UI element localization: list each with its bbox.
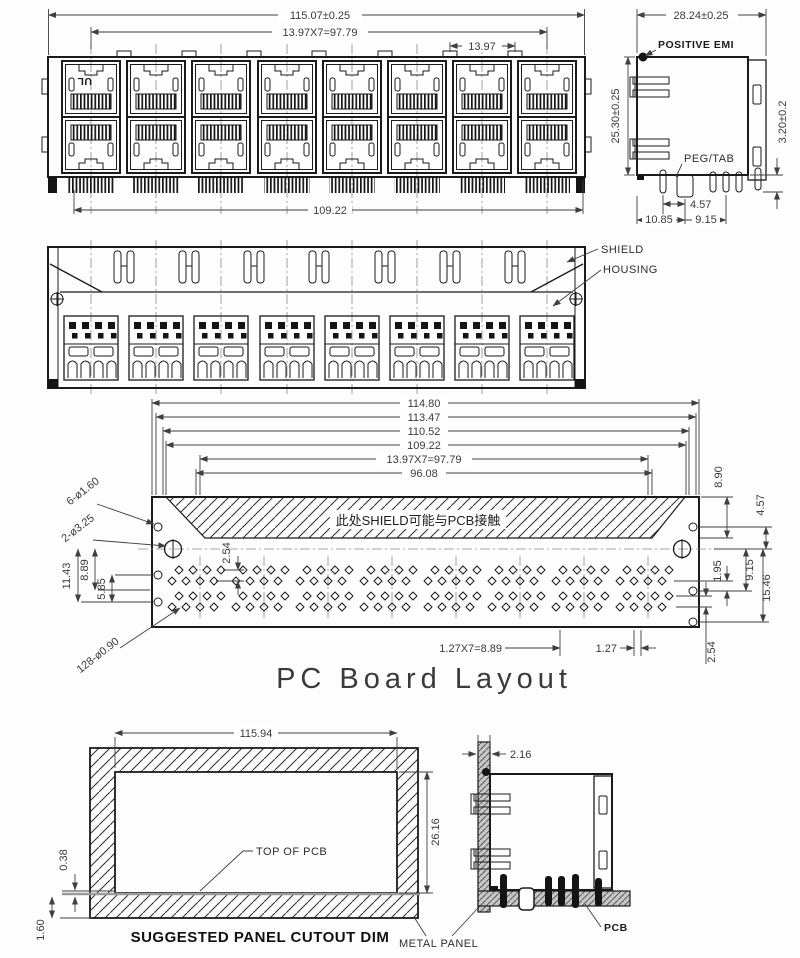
metal-panel-label: METAL PANEL: [399, 938, 478, 950]
dim-row-gap: 1.95: [712, 560, 724, 581]
rj45-ports-lower-row: [62, 117, 576, 173]
cutout-opening: [115, 772, 397, 893]
pcb-top-dimensions: 114.80 113.47 110.52 109.22 13.97X7=97.7…: [152, 397, 699, 495]
rear-view: SHIELD HOUSING: [48, 240, 658, 396]
pcb-right-dimensions: 8.90 4.57 1.95 9.15 15.46 2.54: [674, 466, 773, 664]
dim-cutout-height: 26.16: [430, 818, 442, 846]
side-pins: [637, 168, 761, 197]
big-hole-label: 2-ø3.25: [60, 512, 97, 545]
dim-hole-gap: 4.57: [755, 494, 767, 515]
rear-contact-modules: [64, 316, 574, 380]
dim-shield-width: 109.22: [313, 205, 347, 217]
metal-panel-edge: [478, 742, 490, 912]
dim-left-3: 5.85: [96, 578, 108, 599]
dim-pcb-2: 113.47: [408, 412, 441, 424]
dim-peg-offset: 4.57: [690, 199, 711, 211]
small-hole-label: 6-ø1.60: [65, 475, 102, 508]
dim-pcb-1: 114.80: [408, 398, 441, 410]
pcb-layout: 此处SHIELD可能与PCB接触 114.80 113.47 110.52 10…: [60, 397, 773, 695]
dim-cutout-width: 115.94: [240, 728, 273, 740]
dim-pcb-gap: 0.38: [58, 849, 70, 870]
pcb-label: PCB: [604, 922, 628, 934]
dim-panel-thk-side: 2.16: [510, 749, 531, 761]
dim-panel-thickness: 1.60: [35, 919, 47, 940]
positive-emi-label: POSITIVE EMI: [658, 39, 734, 51]
top-of-pcb-label: TOP OF PCB: [256, 846, 327, 858]
dim-pitch-total: 13.97X7=97.79: [283, 27, 358, 39]
dim-pin-pitch: 1.27: [596, 643, 617, 655]
dim-pin-row-pitch: 2.54: [221, 542, 233, 563]
rj45-ports-upper-row: [62, 61, 576, 117]
pin-hole-label: 128-ø0.90: [75, 635, 122, 675]
dim-left-2: 8.89: [79, 559, 91, 580]
engineering-drawing-page: UL 115.07±0.25 13.97X7=97.79 13.97 109.2…: [0, 0, 800, 953]
shield-label: SHIELD: [601, 244, 644, 256]
dim-port-pitch: 13.97: [468, 41, 496, 53]
dim-left-1: 11.43: [61, 563, 73, 590]
dim-height: 25.30±0.25: [610, 89, 622, 144]
dim-pcb-4: 109.22: [407, 440, 441, 452]
panel-cutout: 115.94 26.16 0.38 1.60 TOP OF PCB SUGGES…: [35, 727, 478, 950]
side-flange: [748, 60, 766, 180]
panel-side-view: 2.16 PCB: [462, 735, 630, 934]
emi-finger-comb: [48, 177, 585, 193]
dim-row3: 15.46: [761, 574, 773, 602]
pcb-bottom-dimensions: 1.27X7=8.89 1.27: [439, 630, 656, 656]
front-view: UL 115.07±0.25 13.97X7=97.79 13.97 109.2…: [42, 9, 591, 217]
dim-standoff: 3.20±0.2: [777, 101, 789, 144]
emi-latch-upper: [630, 77, 669, 97]
dim-pin-pitch-total: 1.27X7=8.89: [439, 643, 502, 655]
pcb-layout-title: PC Board Layout: [276, 663, 572, 695]
dim-pcb-6: 96.08: [410, 468, 438, 480]
peg: [677, 175, 693, 197]
shield-contact-note: 此处SHIELD可能与PCB接触: [336, 513, 501, 528]
peg-through-pcb: [519, 888, 534, 910]
dim-pcb-3: 110.52: [408, 426, 441, 438]
peg-tab-label: PEG/TAB: [684, 153, 734, 165]
connector-drawing: UL 115.07±0.25 13.97X7=97.79 13.97 109.2…: [0, 0, 800, 953]
latch-slot-pairs: [114, 251, 525, 283]
dim-front-offset: 10.85: [645, 214, 673, 226]
emi-latch-lower: [630, 139, 669, 159]
dim-row-offset: 9.15: [695, 214, 716, 226]
dim-hatch-depth: 8.90: [713, 466, 725, 487]
dim-depth: 28.24±0.25: [674, 10, 729, 22]
dim-pcb-5: 13.97X7=97.79: [387, 454, 462, 466]
positive-emi-bump: [639, 53, 648, 62]
dim-bottom-edge: 2.54: [706, 641, 718, 662]
cutout-caption: SUGGESTED PANEL CUTOUT DIM: [131, 929, 390, 946]
dim-row2: 9.15: [744, 559, 756, 580]
pin-hole-clusters: [168, 556, 673, 618]
emi-bump: [482, 768, 490, 776]
dim-overall-width: 115.07±0.25: [290, 10, 350, 22]
housing-label: HOUSING: [603, 264, 658, 276]
ul-recognized-mark: UL: [77, 75, 92, 87]
side-view: 28.24±0.25 POSITIVE EMI 25.30±0.25 3.20±…: [610, 9, 789, 226]
